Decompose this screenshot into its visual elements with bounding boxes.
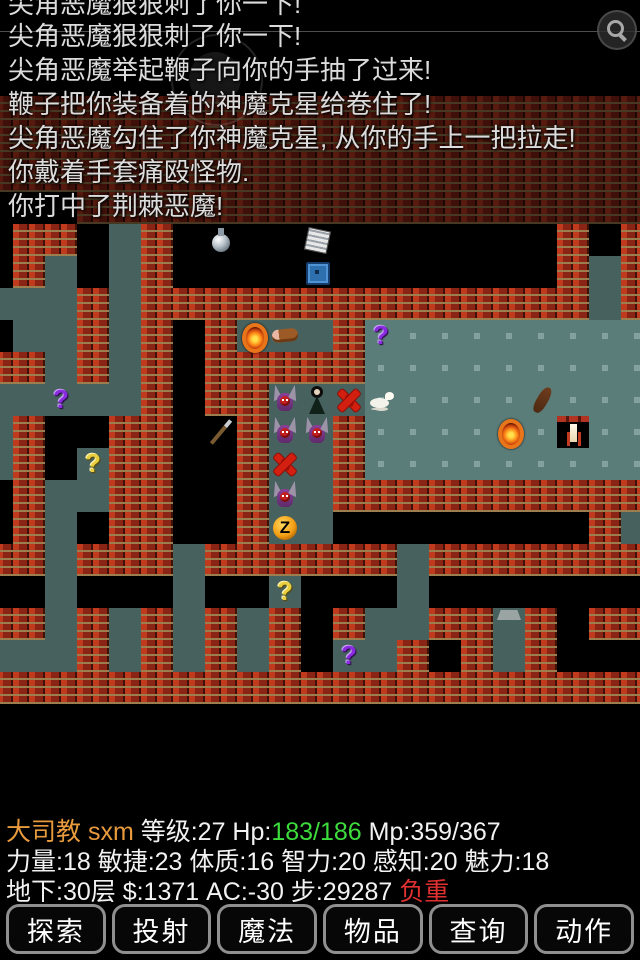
map-tile-corridor-floor[interactable] (589, 256, 621, 288)
map-tile-brick-wall[interactable] (333, 544, 365, 576)
map-tile-room-floor[interactable] (429, 352, 461, 384)
amulet-item-sprite[interactable] (237, 320, 269, 352)
map-tile-room-floor[interactable] (621, 384, 640, 416)
map-tile-room-floor[interactable] (589, 384, 621, 416)
map-tile-room-floor[interactable] (621, 416, 640, 448)
map-tile-corridor-floor[interactable] (365, 640, 397, 672)
staircase-sprite[interactable] (493, 608, 525, 640)
polearm-item-sprite[interactable] (205, 416, 237, 448)
map-tile-corridor-floor[interactable] (45, 512, 77, 544)
map-tile-brick-wall[interactable] (525, 288, 557, 320)
map-tile-corridor-floor[interactable] (397, 608, 429, 640)
map-tile-corridor-floor[interactable] (237, 608, 269, 640)
map-tile-corridor-floor[interactable] (621, 512, 640, 544)
map-tile-room-floor[interactable] (365, 448, 397, 480)
map-tile-corridor-floor[interactable] (173, 544, 205, 576)
map-tile-brick-wall[interactable] (493, 288, 525, 320)
map-tile-room-floor[interactable] (621, 352, 640, 384)
map-tile-brick-wall[interactable] (141, 384, 173, 416)
map-tile-brick-wall[interactable] (333, 672, 365, 704)
map-tile-brick-wall[interactable] (301, 544, 333, 576)
map-tile-corridor-floor[interactable] (301, 448, 333, 480)
horned-demon-sprite[interactable] (269, 384, 301, 416)
map-tile-brick-wall[interactable] (333, 416, 365, 448)
map-tile-brick-wall[interactable] (461, 480, 493, 512)
map-tile-room-floor[interactable] (557, 384, 589, 416)
unknown-scroll-sprite[interactable]: ? (77, 448, 109, 480)
map-tile-brick-wall[interactable] (397, 640, 429, 672)
map-tile-brick-wall[interactable] (141, 288, 173, 320)
map-tile-corridor-floor[interactable] (109, 288, 141, 320)
map-tile-brick-wall[interactable] (237, 416, 269, 448)
map-tile-brick-wall[interactable] (173, 672, 205, 704)
map-tile-room-floor[interactable] (525, 448, 557, 480)
map-tile-brick-wall[interactable] (205, 544, 237, 576)
map-tile-corridor-floor[interactable] (109, 320, 141, 352)
demon-face (280, 492, 290, 502)
map-tile-brick-wall[interactable] (77, 288, 109, 320)
map-tile-brick-wall[interactable] (141, 256, 173, 288)
map-tile-brick-wall[interactable] (13, 224, 45, 256)
map-tile-brick-wall[interactable] (269, 544, 301, 576)
map-tile-brick-wall[interactable] (525, 480, 557, 512)
actions-button[interactable]: 动作 (534, 904, 634, 954)
map-tile-room-floor[interactable] (397, 416, 429, 448)
map-tile-brick-wall[interactable] (237, 544, 269, 576)
map-tile-room-floor[interactable] (589, 448, 621, 480)
demon-body (281, 458, 290, 471)
demon-face (280, 428, 290, 438)
magnifier-icon-handle (617, 32, 627, 42)
map-tile-brick-wall[interactable] (461, 640, 493, 672)
map-tile-brick-wall[interactable] (269, 608, 301, 640)
map-tile-brick-wall[interactable] (461, 608, 493, 640)
map-tile-room-floor[interactable] (365, 352, 397, 384)
map-tile-brick-wall[interactable] (429, 480, 461, 512)
map-tile-brick-wall[interactable] (365, 544, 397, 576)
unknown-scroll-sprite[interactable]: ? (365, 320, 397, 352)
map-tile-corridor-floor[interactable] (45, 640, 77, 672)
demon-body (345, 394, 354, 407)
map-tile-corridor-floor[interactable] (397, 544, 429, 576)
map-tile-brick-wall[interactable] (333, 352, 365, 384)
map-tile-room-floor[interactable] (557, 352, 589, 384)
map-tile-room-floor[interactable] (461, 448, 493, 480)
map-tile-corridor-floor[interactable] (0, 416, 13, 448)
map-tile-corridor-floor[interactable] (173, 576, 205, 608)
items-button[interactable]: 物品 (323, 904, 423, 954)
map-tile-brick-wall[interactable] (525, 544, 557, 576)
figure-face (314, 389, 320, 395)
map-tile-brick-wall[interactable] (141, 640, 173, 672)
map-tile-brick-wall[interactable] (589, 512, 621, 544)
map-tile-brick-wall[interactable] (0, 544, 13, 576)
map-tile-brick-wall[interactable] (13, 352, 45, 384)
map-tile-brick-wall[interactable] (429, 288, 461, 320)
map-tile-room-floor[interactable] (525, 416, 557, 448)
map-tile-brick-wall[interactable] (237, 480, 269, 512)
map-tile-corridor-floor[interactable] (173, 608, 205, 640)
map-tile-brick-wall[interactable] (141, 448, 173, 480)
map-tile-room-floor[interactable] (525, 320, 557, 352)
map-tile-brick-wall[interactable] (77, 352, 109, 384)
map-tile-corridor-floor[interactable] (109, 352, 141, 384)
club-item-sprite[interactable] (525, 384, 557, 416)
map-tile-corridor-floor[interactable] (45, 352, 77, 384)
throw-button[interactable]: 投射 (112, 904, 212, 954)
map-tile-room-floor[interactable] (397, 384, 429, 416)
map-tile-brick-wall[interactable] (621, 256, 640, 288)
map-tile-corridor-floor[interactable] (109, 640, 141, 672)
map-tile-corridor-floor[interactable] (45, 288, 77, 320)
map-tile-room-floor[interactable] (621, 448, 640, 480)
map-tile-brick-wall[interactable] (493, 672, 525, 704)
map-tile-brick-wall[interactable] (557, 288, 589, 320)
map-tile-brick-wall[interactable] (205, 608, 237, 640)
map-tile-brick-wall[interactable] (589, 480, 621, 512)
map-tile-brick-wall[interactable] (109, 448, 141, 480)
map-tile-brick-wall[interactable] (141, 480, 173, 512)
amulet-item-sprite[interactable] (493, 416, 525, 448)
map-tile-room-floor[interactable] (429, 384, 461, 416)
map-tile-brick-wall[interactable] (301, 288, 333, 320)
map-tile-brick-wall[interactable] (205, 640, 237, 672)
map-tile-brick-wall[interactable] (45, 672, 77, 704)
message-log[interactable]: 尖角恶魔狠狠刺了你一下!尖角恶魔狠狠刺了你一下!尖角恶魔举起鞭子向你的手抽了过来… (0, 0, 640, 224)
map-tile-brick-wall[interactable] (205, 352, 237, 384)
map-tile-brick-wall[interactable] (0, 352, 13, 384)
map-tile-brick-wall[interactable] (205, 288, 237, 320)
map-tile-brick-wall[interactable] (141, 320, 173, 352)
map-tile-brick-wall[interactable] (13, 608, 45, 640)
map-tile-brick-wall[interactable] (269, 288, 301, 320)
game-screen: ???Z?? 尖角恶魔狠狠刺了你一下!尖角恶魔狠狠刺了你一下!尖角恶魔举起鞭子向… (0, 0, 640, 960)
map-tile-brick-wall[interactable] (141, 544, 173, 576)
map-tile-room-floor[interactable] (397, 448, 429, 480)
map-tile-room-floor[interactable] (621, 320, 640, 352)
map-tile-brick-wall[interactable] (141, 416, 173, 448)
map-tile-brick-wall[interactable] (13, 256, 45, 288)
map-tile-brick-wall[interactable] (45, 224, 77, 256)
map-tile-room-floor[interactable] (397, 320, 429, 352)
white-animal-sprite[interactable] (365, 384, 397, 416)
map-tile-corridor-floor[interactable] (301, 480, 333, 512)
map-tile-brick-wall[interactable] (141, 608, 173, 640)
map-tile-corridor-floor[interactable] (13, 320, 45, 352)
map-tile-room-floor[interactable] (493, 352, 525, 384)
map-tile-brick-wall[interactable] (205, 672, 237, 704)
map-tile-brick-wall[interactable] (109, 512, 141, 544)
message-line: 鞭子把你装备着的神魔克星给卷住了! (8, 84, 640, 121)
map-tile-corridor-floor[interactable] (45, 608, 77, 640)
map-tile-brick-wall[interactable] (557, 224, 589, 256)
map-tile-corridor-floor[interactable] (365, 608, 397, 640)
map-tile-brick-wall[interactable] (13, 672, 45, 704)
map-tile-room-floor[interactable] (461, 352, 493, 384)
explore-button[interactable]: 探索 (6, 904, 106, 954)
map-tile-room-floor[interactable] (365, 416, 397, 448)
map-tile-corridor-floor[interactable] (109, 384, 141, 416)
map-tile-brick-wall[interactable] (589, 544, 621, 576)
map-tile-corridor-floor[interactable] (0, 448, 13, 480)
map-tile-corridor-floor[interactable] (301, 320, 333, 352)
map-tile-brick-wall[interactable] (237, 512, 269, 544)
map-tile-corridor-floor[interactable] (237, 640, 269, 672)
map-tile-brick-wall[interactable] (621, 672, 640, 704)
map-tile-room-floor[interactable] (589, 416, 621, 448)
map-tile-brick-wall[interactable] (365, 288, 397, 320)
map-tile-brick-wall[interactable] (557, 480, 589, 512)
map-tile-brick-wall[interactable] (429, 608, 461, 640)
map-tile-brick-wall[interactable] (13, 480, 45, 512)
map-tile-brick-wall[interactable] (269, 672, 301, 704)
zoom-button[interactable] (597, 10, 637, 50)
map-tile-corridor-floor[interactable] (493, 640, 525, 672)
map-tile-corridor-floor[interactable] (109, 256, 141, 288)
map-tile-room-floor[interactable] (589, 320, 621, 352)
dark-figure-sprite[interactable] (301, 384, 333, 416)
magic-button[interactable]: 魔法 (217, 904, 317, 954)
map-tile-brick-wall[interactable] (493, 480, 525, 512)
map-tile-corridor-floor[interactable] (45, 544, 77, 576)
map-tile-room-floor[interactable] (397, 352, 429, 384)
map-tile-brick-wall[interactable] (77, 544, 109, 576)
message-line: 尖角恶魔勾住了你神魔克星, 从你的手上一把拉走! (8, 118, 640, 155)
map-tile-corridor-floor[interactable] (77, 384, 109, 416)
map-tile-brick-wall[interactable] (525, 608, 557, 640)
map-tile-brick-wall[interactable] (109, 544, 141, 576)
map-tile-brick-wall[interactable] (525, 640, 557, 672)
map-tile-room-floor[interactable] (557, 320, 589, 352)
map-tile-brick-wall[interactable] (13, 448, 45, 480)
map-tile-brick-wall[interactable] (333, 608, 365, 640)
message-line: 尖角恶魔狠狠刺了你一下! (8, 16, 640, 53)
map-tile-room-floor[interactable] (493, 384, 525, 416)
map-tile-corridor-floor[interactable] (109, 608, 141, 640)
map-tile-brick-wall[interactable] (333, 288, 365, 320)
unknown-scroll-sprite[interactable]: ? (269, 576, 301, 608)
map-tile-room-floor[interactable] (429, 320, 461, 352)
horned-demon-sprite[interactable] (269, 416, 301, 448)
map-tile-room-floor[interactable] (493, 320, 525, 352)
map-tile-brick-wall[interactable] (493, 544, 525, 576)
unknown-scroll-sprite[interactable]: ? (45, 384, 77, 416)
map-tile-brick-wall[interactable] (621, 480, 640, 512)
map-tile-brick-wall[interactable] (589, 608, 621, 640)
map-tile-corridor-floor[interactable] (45, 576, 77, 608)
map-tile-brick-wall[interactable] (333, 320, 365, 352)
map-tile-brick-wall[interactable] (205, 384, 237, 416)
map-tile-brick-wall[interactable] (13, 416, 45, 448)
message-line: 你戴着手套痛殴怪物. (8, 152, 640, 189)
map-tile-brick-wall[interactable] (0, 672, 13, 704)
map-tile-brick-wall[interactable] (621, 288, 640, 320)
map-tile-room-floor[interactable] (493, 448, 525, 480)
map-tile-brick-wall[interactable] (77, 672, 109, 704)
horned-demon-sprite[interactable] (269, 480, 301, 512)
message-line: 尖角恶魔举起鞭子向你的手抽了过来! (8, 50, 640, 87)
map-tile-brick-wall[interactable] (461, 672, 493, 704)
map-tile-brick-wall[interactable] (557, 672, 589, 704)
map-tile-corridor-floor[interactable] (589, 288, 621, 320)
map-tile-brick-wall[interactable] (397, 288, 429, 320)
map-tile-brick-wall[interactable] (13, 544, 45, 576)
map-tile-corridor-floor[interactable] (77, 480, 109, 512)
map-tile-brick-wall[interactable] (525, 672, 557, 704)
map-tile-corridor-floor[interactable] (13, 288, 45, 320)
map-tile-room-floor[interactable] (461, 416, 493, 448)
map-tile-room-floor[interactable] (525, 352, 557, 384)
map-tile-brick-wall[interactable] (557, 256, 589, 288)
map-tile-brick-wall[interactable] (0, 608, 13, 640)
map-tile-corridor-floor[interactable] (45, 320, 77, 352)
map-tile-corridor-floor[interactable] (173, 640, 205, 672)
red-demon-sprite[interactable] (269, 448, 301, 480)
map-tile-brick-wall[interactable] (269, 352, 301, 384)
demon-face (312, 428, 322, 438)
map-tile-brick-wall[interactable] (141, 224, 173, 256)
chest-item-sprite[interactable] (301, 256, 333, 288)
meat-item-sprite[interactable] (269, 320, 301, 352)
map-tile-brick-wall[interactable] (461, 288, 493, 320)
map-tile-brick-wall[interactable] (77, 320, 109, 352)
unknown-scroll-sprite[interactable]: ? (333, 640, 365, 672)
map-tile-corridor-floor[interactable] (301, 512, 333, 544)
action-toolbar: 探索投射魔法物品查询动作 (0, 902, 640, 960)
map-tile-brick-wall[interactable] (269, 640, 301, 672)
map-tile-corridor-floor[interactable] (0, 640, 13, 672)
map-tile-brick-wall[interactable] (365, 672, 397, 704)
scroll-item-sprite[interactable] (301, 224, 333, 256)
map-tile-brick-wall[interactable] (77, 608, 109, 640)
map-tile-room-floor[interactable] (461, 320, 493, 352)
map-tile-brick-wall[interactable] (109, 480, 141, 512)
map-tile-brick-wall[interactable] (621, 224, 640, 256)
red-demon-sprite[interactable] (333, 384, 365, 416)
map-tile-brick-wall[interactable] (333, 448, 365, 480)
map-tile-brick-wall[interactable] (333, 480, 365, 512)
map-tile-corridor-floor[interactable] (45, 480, 77, 512)
map-tile-brick-wall[interactable] (589, 672, 621, 704)
map-tile-room-floor[interactable] (429, 416, 461, 448)
message-divider (0, 31, 640, 32)
map-tile-brick-wall[interactable] (237, 672, 269, 704)
map-tile-room-floor[interactable] (589, 352, 621, 384)
query-button[interactable]: 查询 (429, 904, 529, 954)
map-tile-brick-wall[interactable] (557, 544, 589, 576)
map-tile-brick-wall[interactable] (397, 672, 429, 704)
map-tile-corridor-floor[interactable] (0, 288, 13, 320)
map-tile-brick-wall[interactable] (429, 544, 461, 576)
map-tile-brick-wall[interactable] (141, 512, 173, 544)
map-tile-brick-wall[interactable] (173, 288, 205, 320)
map-tile-brick-wall[interactable] (205, 320, 237, 352)
map-tile-room-floor[interactable] (557, 448, 589, 480)
map-tile-corridor-floor[interactable] (13, 640, 45, 672)
map-tile-corridor-floor[interactable] (13, 384, 45, 416)
map-tile-corridor-floor[interactable] (0, 384, 13, 416)
map-tile-brick-wall[interactable] (429, 672, 461, 704)
message-line: 你打中了荆棘恶魔! (8, 186, 640, 223)
map-tile-room-floor[interactable] (461, 384, 493, 416)
z-symbol-sprite[interactable]: Z (269, 512, 301, 544)
map-tile-brick-wall[interactable] (237, 384, 269, 416)
map-tile-brick-wall[interactable] (237, 288, 269, 320)
map-tile-brick-wall[interactable] (237, 448, 269, 480)
z-glyph: Z (273, 516, 297, 540)
demon-face (280, 396, 290, 406)
map-tile-room-floor[interactable] (429, 448, 461, 480)
map-tile-corridor-floor[interactable] (109, 224, 141, 256)
map-tile-brick-wall[interactable] (301, 352, 333, 384)
map-tile-brick-wall[interactable] (461, 544, 493, 576)
map-tile-brick-wall[interactable] (621, 544, 640, 576)
map-tile-corridor-floor[interactable] (45, 256, 77, 288)
map-tile-brick-wall[interactable] (109, 416, 141, 448)
white-statue-niche-sprite[interactable] (557, 416, 589, 448)
map-tile-corridor-floor[interactable] (397, 576, 429, 608)
map-tile-brick-wall[interactable] (397, 480, 429, 512)
map-tile-brick-wall[interactable] (77, 640, 109, 672)
map-tile-brick-wall[interactable] (301, 672, 333, 704)
horned-demon-sprite[interactable] (301, 416, 333, 448)
map-tile-brick-wall[interactable] (237, 352, 269, 384)
map-tile-brick-wall[interactable] (621, 608, 640, 640)
map-tile-brick-wall[interactable] (365, 480, 397, 512)
map-tile-brick-wall[interactable] (109, 672, 141, 704)
potion-item-sprite[interactable] (205, 224, 237, 256)
map-tile-brick-wall[interactable] (141, 672, 173, 704)
map-tile-brick-wall[interactable] (141, 352, 173, 384)
status-bar: 大司教 sxm 等级:27 Hp:183/186 Mp:359/367 力量:1… (0, 806, 640, 902)
map-tile-brick-wall[interactable] (13, 512, 45, 544)
